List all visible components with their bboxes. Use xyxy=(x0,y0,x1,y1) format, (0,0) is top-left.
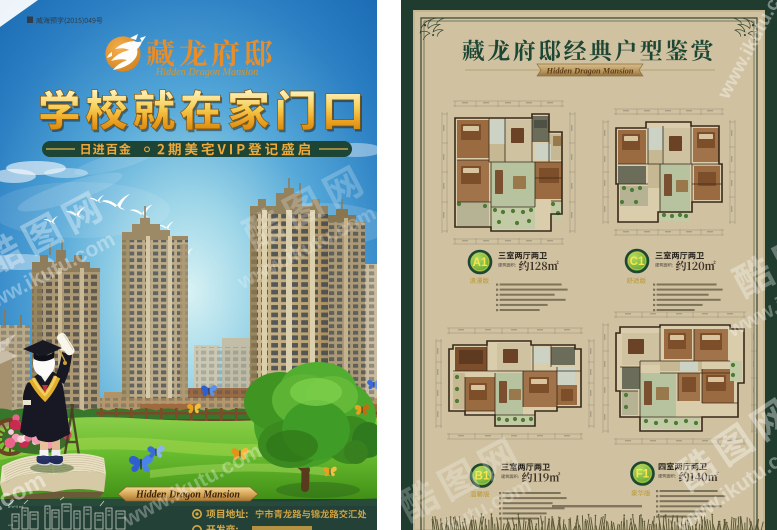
svg-text:tu.com: tu.com xyxy=(0,467,50,528)
svg-text:www.ikutu.com: www.ikutu.com xyxy=(119,439,266,530)
svg-text:www.ikutu.com: www.ikutu.com xyxy=(713,0,777,103)
